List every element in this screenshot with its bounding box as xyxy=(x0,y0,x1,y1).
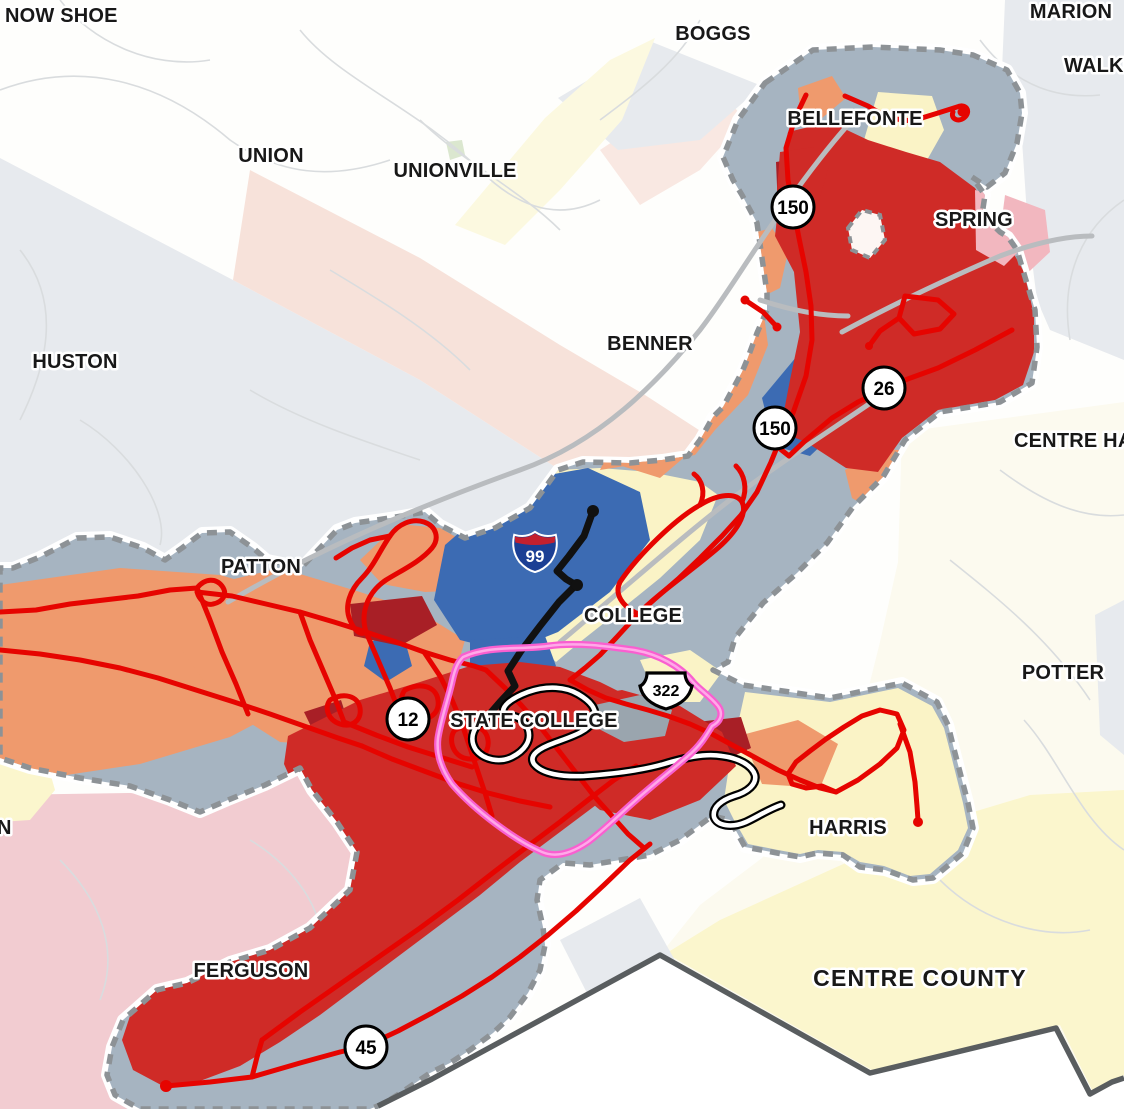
svg-text:26: 26 xyxy=(873,379,894,400)
label-benner: BENNER xyxy=(607,333,693,355)
label-unionville: UNIONVILLE xyxy=(393,160,516,182)
label-patton: PATTON xyxy=(221,556,301,578)
label-marion: MARION xyxy=(1030,1,1112,23)
svg-text:45: 45 xyxy=(355,1038,377,1059)
shield-pa-26: 26 xyxy=(863,367,905,409)
svg-text:150: 150 xyxy=(759,419,791,440)
map-canvas: 150 26 150 12 45 99 322 NOW SHOE BOGGS M… xyxy=(0,0,1124,1109)
svg-text:12: 12 xyxy=(397,710,418,731)
shield-pa-150-north: 150 xyxy=(772,186,814,228)
label-halfmoon-fragment: N xyxy=(0,817,12,839)
svg-text:99: 99 xyxy=(526,547,545,566)
label-boggs: BOGGS xyxy=(675,23,750,45)
label-potter: POTTER xyxy=(1022,662,1105,684)
label-bellefonte: BELLEFONTE xyxy=(787,108,922,130)
label-huston: HUSTON xyxy=(32,351,117,373)
label-union: UNION xyxy=(238,145,303,167)
label-centre-county: CENTRE COUNTY xyxy=(813,965,1027,991)
shield-route-12: 12 xyxy=(387,698,429,740)
shield-pa-150-south: 150 xyxy=(754,407,796,449)
svg-text:150: 150 xyxy=(777,198,809,219)
label-state-college: STATE COLLEGE xyxy=(450,710,617,732)
label-harris: HARRIS xyxy=(809,817,887,839)
label-snow-shoe: NOW SHOE xyxy=(5,5,118,27)
label-college: COLLEGE xyxy=(584,605,682,627)
shield-route-45: 45 xyxy=(345,1026,387,1068)
label-walker: WALKE xyxy=(1064,55,1124,77)
label-ferguson: FERGUSON xyxy=(194,960,309,982)
label-centre-hall: CENTRE HAL xyxy=(1014,430,1124,452)
label-spring: SPRING xyxy=(935,209,1013,231)
transit-coverage-map: 150 26 150 12 45 99 322 NOW SHOE BOGGS M… xyxy=(0,0,1124,1109)
svg-text:322: 322 xyxy=(653,683,680,700)
